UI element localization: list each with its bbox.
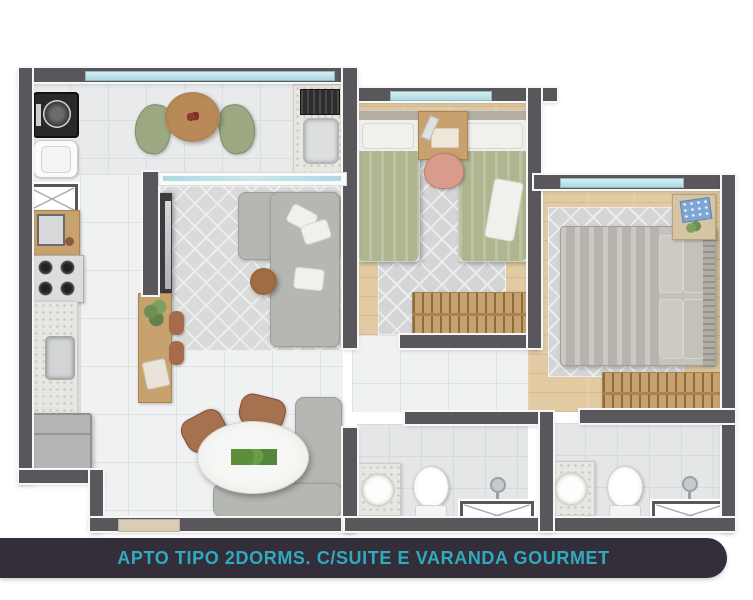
vanity-sink: [361, 473, 395, 507]
washer-drum-icon: [43, 100, 71, 128]
wall-bathroom1-left: [343, 428, 357, 531]
twin-bed-left: [356, 110, 420, 262]
tank-basin: [41, 146, 71, 173]
pillow: [465, 123, 523, 149]
balcony-window: [85, 71, 335, 81]
wall-suite-right: [722, 175, 735, 531]
entry-door: [118, 519, 180, 532]
laundry-tank: [33, 140, 78, 178]
toilet-tank: [415, 505, 447, 518]
toilet-bowl: [607, 466, 643, 508]
floor-plan-image: APTO TIPO 2DORMS. C/SUITE E VARANDA GOUR…: [0, 0, 753, 600]
tv-wall-stub: [143, 172, 158, 295]
coffee-table: [250, 268, 277, 295]
caption-text: APTO TIPO 2DORMS. C/SUITE E VARANDA GOUR…: [117, 548, 610, 569]
plant-icon: [141, 298, 169, 328]
grill-counter: [293, 84, 345, 176]
stool-1: [169, 311, 184, 335]
vanity-sink: [554, 472, 588, 506]
headboard: [459, 111, 527, 120]
stove: [32, 255, 84, 303]
grill-icon: [300, 89, 340, 115]
caption-bar: APTO TIPO 2DORMS. C/SUITE E VARANDA GOUR…: [0, 538, 727, 578]
wall-bedroom1-bottom: [400, 335, 541, 348]
nightstand: [672, 194, 716, 240]
grill-sink: [303, 118, 339, 164]
washer-controls: [36, 104, 41, 126]
wardrobe-shelf-line: [603, 392, 723, 395]
pillow: [659, 299, 683, 359]
centerpiece-icon: [231, 449, 277, 465]
tray-icon: [141, 358, 170, 390]
wall-bedroom1-right: [528, 88, 541, 348]
duvet: [357, 151, 419, 261]
sideboard: [138, 293, 172, 403]
wall-suite-bathroom-left: [540, 412, 553, 531]
headboard: [357, 111, 419, 120]
washing-machine: [33, 92, 79, 138]
wall-left: [19, 68, 32, 483]
fridge: [31, 413, 92, 473]
tv-panel: [157, 193, 172, 297]
shower-2: [682, 476, 696, 500]
kitchen-counter-upper: [32, 210, 80, 256]
kitchen-counter-sink: [32, 301, 78, 414]
sofa-pillow-3: [293, 266, 325, 291]
desk-paper-icon: [431, 128, 459, 148]
wall-bathroom1-top: [405, 412, 540, 424]
toilet-2: [606, 466, 642, 518]
bedroom1-wardrobe: [412, 292, 531, 338]
kettle-icon: [65, 237, 74, 246]
exterior-mask: [19, 483, 91, 531]
balcony-table: [165, 92, 220, 142]
pillow: [683, 235, 705, 293]
duvet: [561, 227, 659, 365]
plant-icon: [683, 219, 703, 237]
double-bed: [560, 226, 716, 366]
pillow: [659, 235, 683, 293]
tv-screen-icon: [165, 201, 171, 289]
bedroom1-window: [390, 91, 492, 101]
dining-table: [197, 421, 309, 494]
stool-2: [169, 341, 184, 365]
toilet-tank: [609, 505, 641, 518]
table-decor: [187, 112, 199, 122]
kitchen-sink: [45, 336, 75, 380]
bathroom1-vanity: [352, 463, 401, 516]
wall-suite-bathroom-top: [580, 410, 735, 423]
desk-chair: [424, 153, 464, 189]
glass-pane: [163, 176, 341, 181]
fridge-door-line: [33, 433, 90, 435]
toilet-1: [412, 466, 448, 518]
sliding-glass-door: [158, 172, 347, 186]
suite-window: [560, 178, 684, 188]
toilet-bowl: [413, 466, 449, 508]
microwave-icon: [37, 214, 65, 246]
wall-bedroom1-left: [343, 68, 357, 348]
wardrobe-shelf-line: [413, 313, 530, 316]
shower-1: [490, 477, 504, 501]
headboard: [703, 225, 715, 367]
pillow: [362, 123, 414, 149]
pillow: [683, 299, 705, 359]
